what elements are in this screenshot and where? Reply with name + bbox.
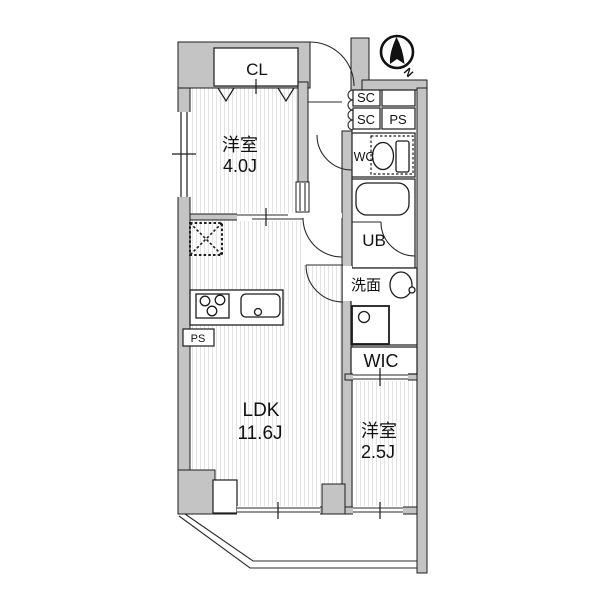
compass-icon xyxy=(381,36,413,68)
bedroom2-name-label: 洋室 xyxy=(361,421,397,441)
washroom-label: 洗面 xyxy=(351,277,381,294)
pipe-space-kitchen-label: PS xyxy=(191,333,206,345)
ldk-name-label: LDK xyxy=(243,400,280,421)
bathtub-icon xyxy=(356,183,409,215)
wall-bottom-center-stub xyxy=(322,484,345,514)
wall-bedroom1-east xyxy=(298,82,308,182)
wall-right xyxy=(417,88,427,573)
closet-label: CL xyxy=(246,60,268,79)
bottom-left-column-box xyxy=(213,480,237,513)
washing-machine-icon xyxy=(352,306,389,344)
bedroom1-name-label: 洋室 xyxy=(222,135,258,155)
bedroom1-size-label: 4.0J xyxy=(223,156,257,176)
floor-plan-svg: CL 洋室 4.0J SC SC PS WC UB 洗面 WIC LDK 11.… xyxy=(0,0,606,609)
shoe-closet-2-label: SC xyxy=(357,112,375,127)
kitchen-sink-icon xyxy=(241,294,280,317)
stove-icon xyxy=(196,294,229,318)
kitchen-counter xyxy=(190,290,283,325)
ub-label: UB xyxy=(362,231,386,250)
ldk-size-label: 11.6J xyxy=(237,423,282,444)
duct-blank-box xyxy=(382,90,415,106)
wc-label: WC xyxy=(354,150,375,164)
wic-label: WIC xyxy=(364,351,399,371)
ldk-vestibule-floor xyxy=(303,218,342,265)
shoe-closet-1-label: SC xyxy=(357,90,375,105)
wall-bottom-left-chunk xyxy=(178,470,215,514)
bedroom2-size-label: 2.5J xyxy=(361,442,395,462)
bedroom1-door xyxy=(296,182,309,212)
floor-plan-image: CL 洋室 4.0J SC SC PS WC UB 洗面 WIC LDK 11.… xyxy=(0,0,606,609)
pipe-space-top-label: PS xyxy=(389,112,407,127)
